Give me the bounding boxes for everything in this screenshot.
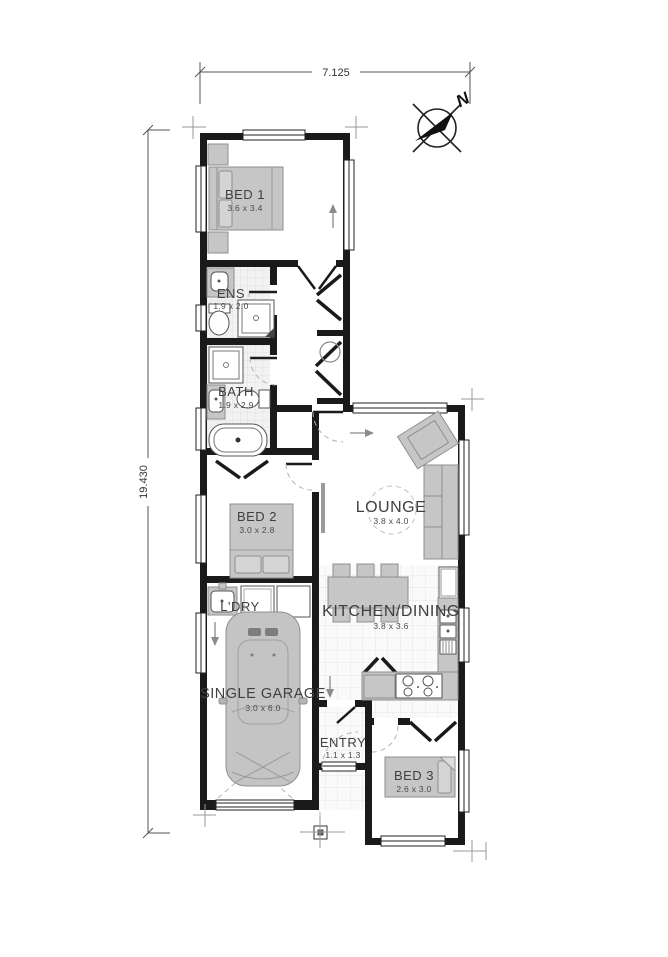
garage-door (216, 800, 294, 810)
window (196, 495, 206, 563)
dimension-top: 7.125 (195, 62, 475, 104)
lounge-furniture (321, 411, 458, 559)
robe-doors (410, 722, 431, 741)
room-label-bath: BATH (218, 384, 254, 399)
room-label-bed2: BED 2 (237, 509, 277, 524)
chair-icon (333, 564, 350, 578)
hall-floor (372, 700, 458, 718)
window (459, 750, 469, 812)
door-swing-arc (286, 464, 312, 490)
room-size-garage: 3.0 x 6.0 (245, 703, 280, 713)
room-size-bed1: 3.6 x 3.4 (227, 203, 262, 213)
room-label-bed3: BED 3 (394, 768, 434, 783)
up-arrow-icon (329, 204, 337, 213)
bedside-table-icon (208, 144, 228, 165)
bedside-table-icon (208, 232, 228, 253)
cooktop-icon (396, 674, 442, 698)
front-door (322, 762, 356, 771)
room-label-lounge: LOUNGE (356, 499, 427, 516)
tv-icon (321, 483, 325, 533)
robe-doors (435, 722, 456, 741)
room-size-bed2: 3.0 x 2.8 (239, 525, 274, 535)
window (196, 305, 206, 331)
toilet-icon (209, 311, 229, 335)
window (353, 403, 447, 413)
door-leaf (298, 266, 315, 289)
window (196, 166, 206, 232)
door-swing-arc (372, 726, 398, 752)
dimension-width-label: 7.125 (322, 67, 350, 79)
shower-icon (209, 347, 243, 383)
pillow-icon (235, 556, 261, 573)
room-label-ens: ENS (217, 286, 245, 301)
robe-doors (216, 461, 240, 478)
window (196, 613, 206, 673)
drain-icon (236, 438, 241, 443)
window (344, 160, 354, 250)
room-label-laundry: L'DRY (220, 599, 259, 614)
window (459, 440, 469, 535)
fridge-icon (439, 567, 458, 598)
drainer-icon (440, 640, 456, 654)
room-size-bed3: 2.6 x 3.0 (396, 784, 431, 794)
down-arrow-icon (211, 637, 219, 646)
chair-icon (357, 564, 374, 578)
room-label-entry: ENTRY (320, 735, 366, 750)
pillow-icon (263, 556, 289, 573)
porch-post (300, 812, 345, 848)
closet-doors (316, 371, 341, 395)
room-size-ens: 1.9 x 2.0 (213, 301, 248, 311)
window (459, 608, 469, 662)
north-compass-icon: N (413, 88, 473, 152)
room-label-garage: SINGLE GARAGE (200, 686, 326, 702)
sofa-icon (424, 465, 458, 559)
room-size-lounge: 3.8 x 4.0 (373, 516, 408, 526)
window (243, 130, 305, 140)
room-size-bath: 1.9 x 2.9 (218, 400, 253, 410)
robe-doors (244, 461, 268, 478)
chair-icon (381, 564, 398, 578)
room-label-kitchen: KITCHEN/DINING (322, 603, 460, 620)
room-label-bed1: BED 1 (225, 187, 265, 202)
right-arrow-icon (365, 429, 374, 437)
dimension-depth-label: 19.430 (138, 465, 150, 499)
floor-plan-page: 7.125 19.430 N (0, 0, 668, 957)
dimension-left: 19.430 (138, 125, 170, 838)
porch-floor (319, 772, 365, 810)
pantry-icon (364, 675, 395, 698)
window (196, 408, 206, 450)
closet-doors (317, 300, 341, 320)
window (381, 836, 445, 846)
floor-plan-drawing: 7.125 19.430 N (0, 0, 668, 957)
toilet-cistern-icon (259, 390, 270, 408)
armchair-icon (398, 411, 459, 469)
room-size-entry: 1.1 x 1.3 (325, 750, 360, 760)
room-size-kitchen: 3.8 x 3.6 (373, 621, 408, 631)
tap-icon (219, 583, 226, 589)
